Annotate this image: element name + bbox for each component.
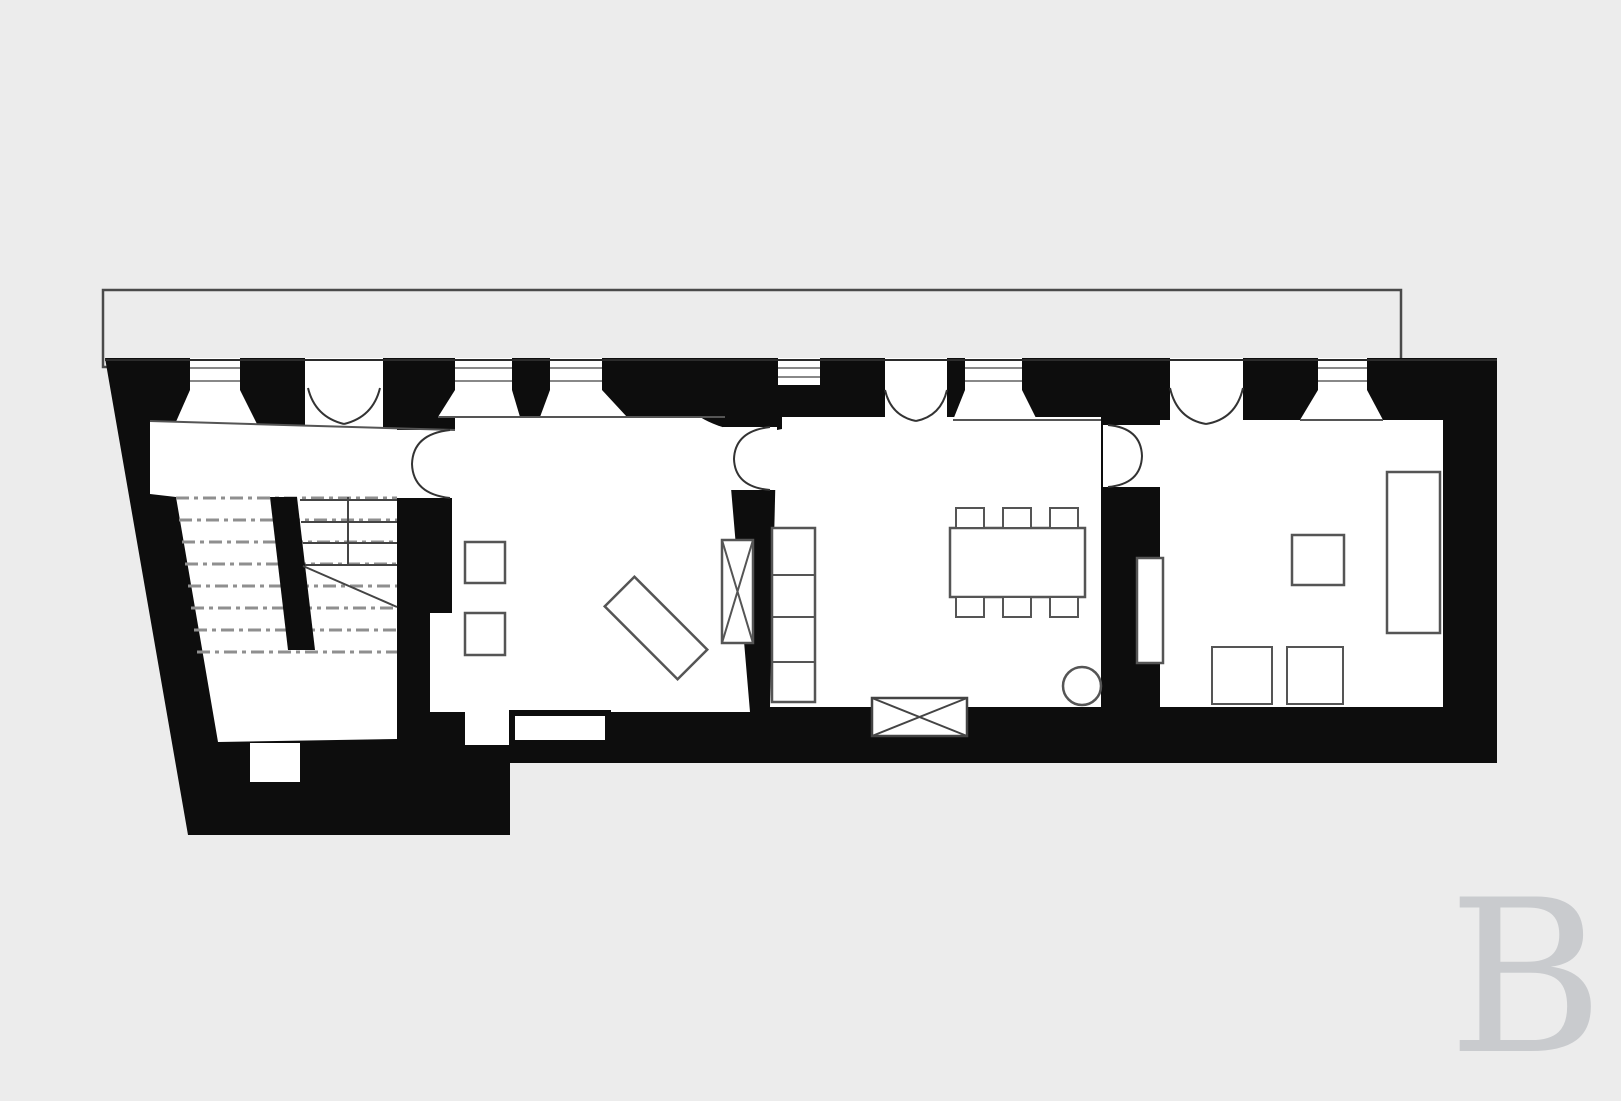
door-gap-bedroom-terrace <box>1170 358 1243 424</box>
dining-chair <box>1050 508 1078 528</box>
bedroom-bed <box>1387 472 1440 633</box>
bedroom-seat-2 <box>1287 647 1343 704</box>
dining-chair <box>1050 597 1078 617</box>
dining-cabinet-column <box>772 528 815 702</box>
watermark-letter: B <box>1448 872 1604 1084</box>
door-gap-entrance <box>305 358 383 428</box>
living-side-table-1 <box>465 542 505 583</box>
bedroom-seat-1 <box>1212 647 1272 704</box>
window-slot-3 <box>550 358 602 390</box>
hall-wall-niche <box>250 743 300 782</box>
dining-chair <box>956 508 984 528</box>
window-slot-6 <box>1318 358 1367 390</box>
bench-sideboard <box>512 713 608 743</box>
living-side-table-2 <box>465 613 505 655</box>
dining-chair <box>1003 597 1031 617</box>
dining-chair <box>956 597 984 617</box>
floor-plan-canvas: B <box>0 0 1621 1080</box>
bedroom-radiator <box>1137 558 1163 663</box>
window-slot-1 <box>190 358 240 390</box>
terrace-outline <box>103 290 1401 367</box>
window-slot-4 <box>778 358 820 385</box>
dining-table <box>950 528 1085 597</box>
dining-stove-circle <box>1063 667 1101 705</box>
window-slot-2 <box>455 358 512 390</box>
window-slot-5 <box>965 358 1022 390</box>
floor-plan-svg <box>0 0 1621 1080</box>
door-gap-living-dining <box>723 427 777 490</box>
dining-chair <box>1003 508 1031 528</box>
bedroom-table-square <box>1292 535 1344 585</box>
